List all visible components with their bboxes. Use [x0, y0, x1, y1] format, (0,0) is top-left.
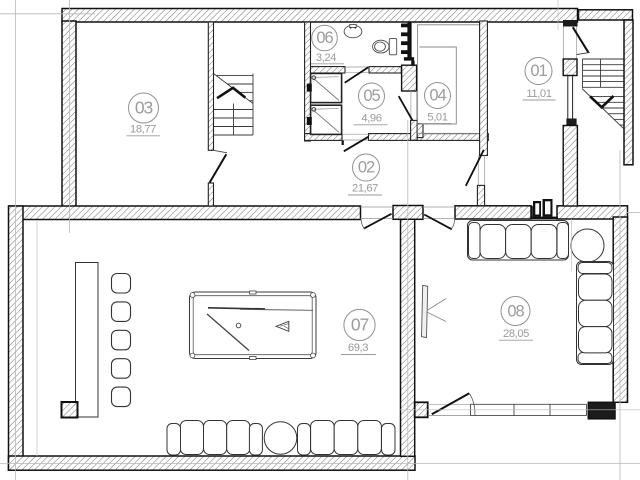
svg-text:3,24: 3,24 [316, 52, 336, 64]
svg-text:28,05: 28,05 [503, 328, 529, 340]
svg-text:69,3: 69,3 [348, 342, 368, 354]
svg-text:21,67: 21,67 [352, 183, 378, 195]
svg-text:11,01: 11,01 [526, 88, 551, 100]
svg-text:18,77: 18,77 [130, 124, 156, 136]
svg-text:05: 05 [363, 87, 380, 105]
svg-text:02: 02 [358, 159, 375, 177]
svg-text:5,01: 5,01 [427, 112, 447, 124]
svg-text:4,96: 4,96 [361, 113, 381, 125]
svg-text:06: 06 [316, 29, 333, 47]
svg-text:08: 08 [507, 303, 524, 321]
svg-text:01: 01 [530, 62, 547, 80]
svg-text:07: 07 [351, 315, 369, 335]
svg-text:04: 04 [429, 87, 446, 105]
svg-text:03: 03 [135, 98, 153, 118]
